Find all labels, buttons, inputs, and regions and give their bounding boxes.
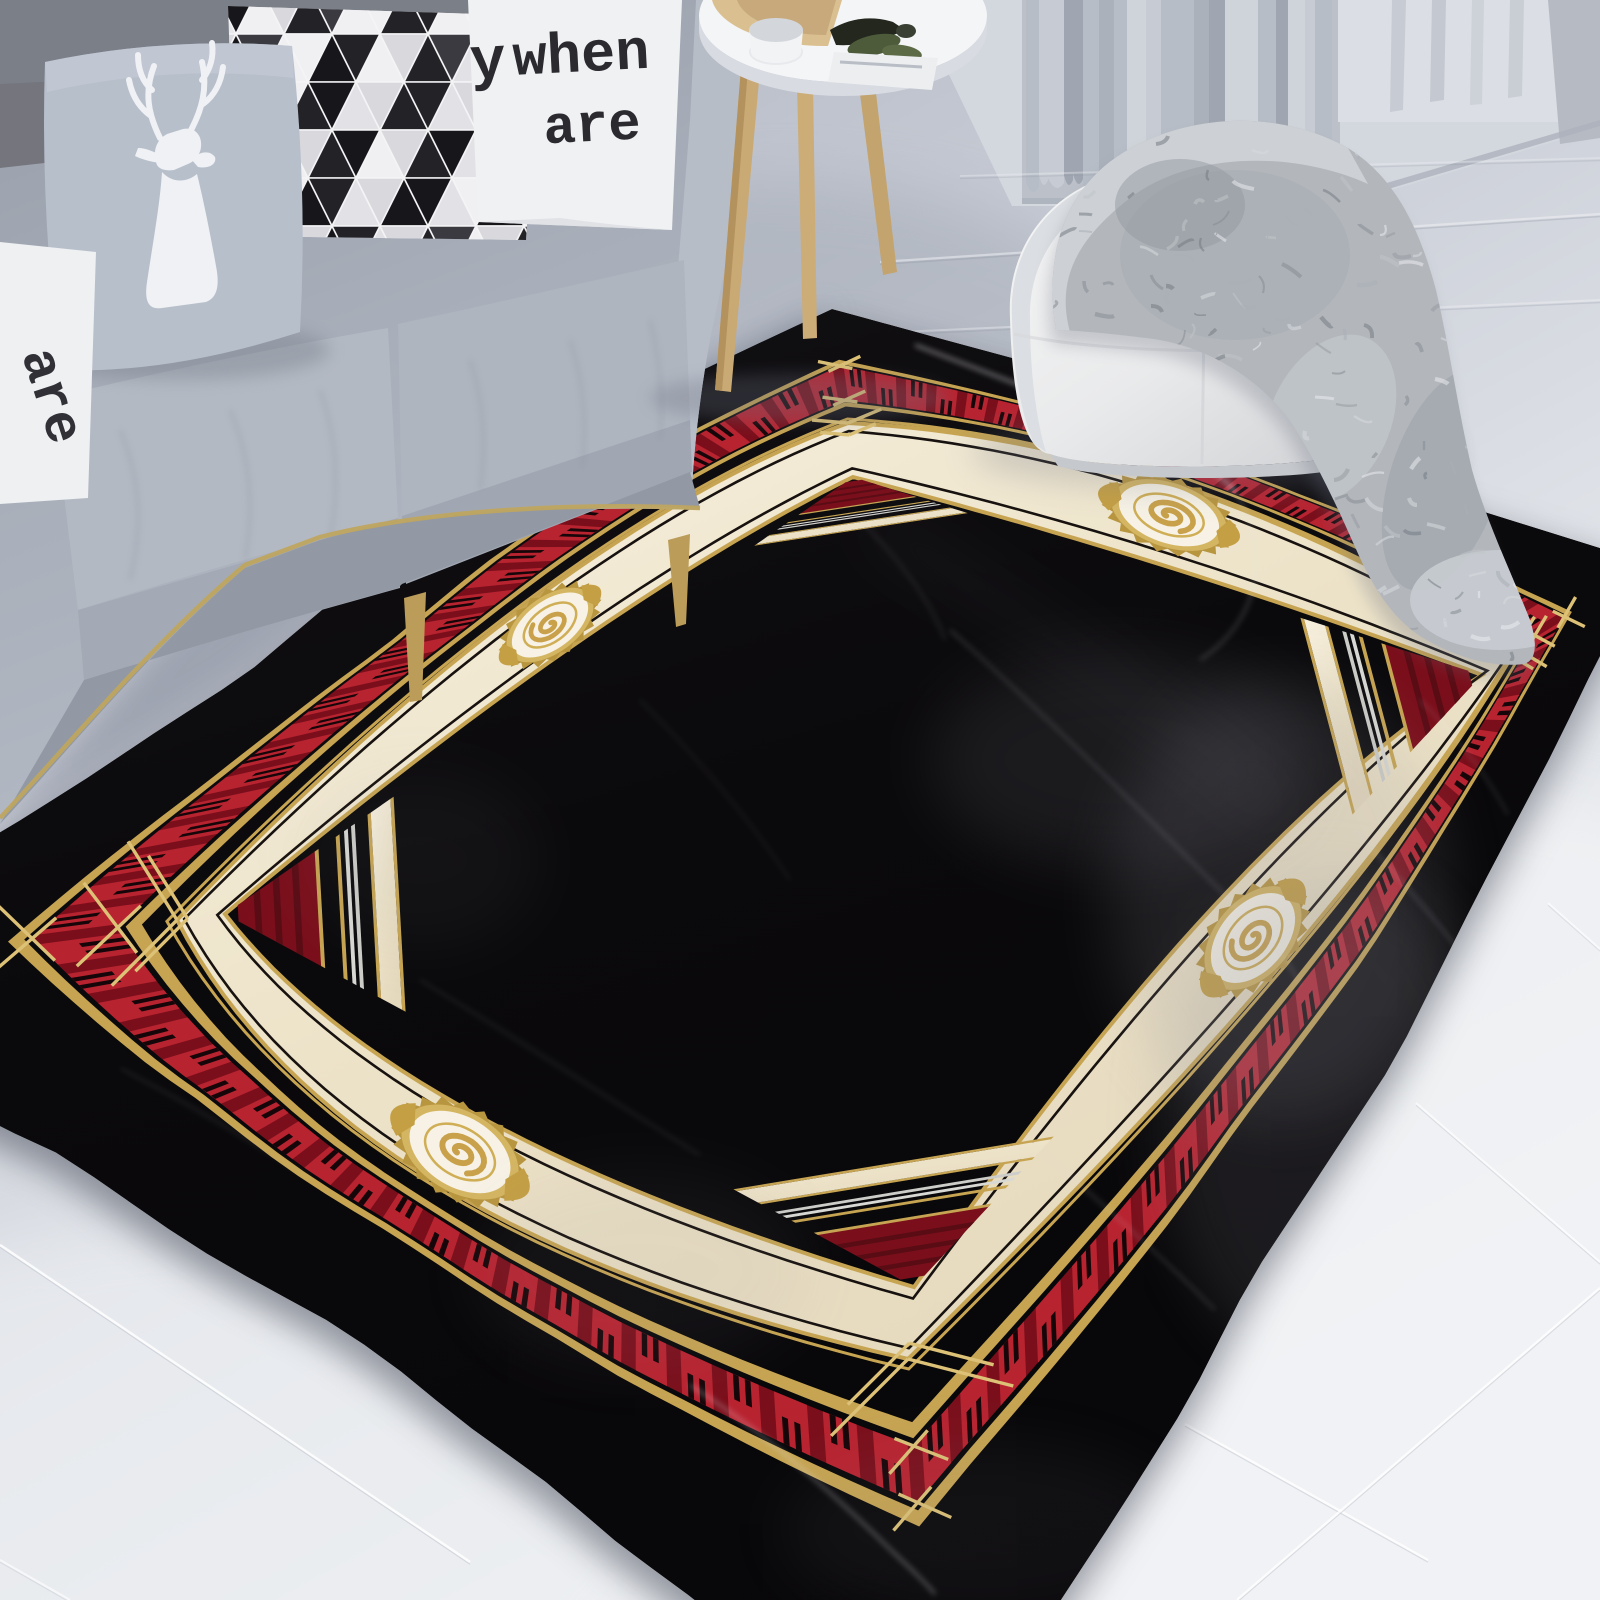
svg-text:are: are: [542, 94, 642, 160]
svg-text:y: y: [468, 28, 508, 98]
svg-text:when: when: [511, 22, 651, 93]
